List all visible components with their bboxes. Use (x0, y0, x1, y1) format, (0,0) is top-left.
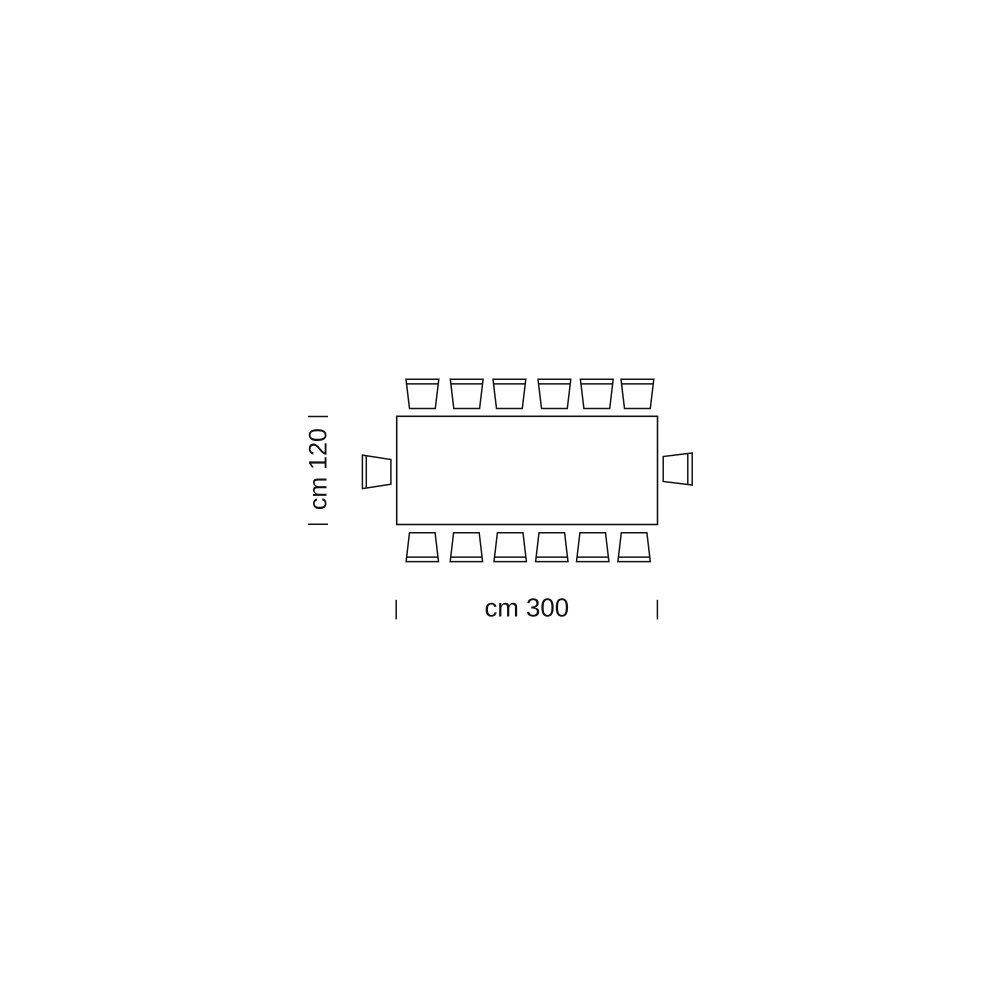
svg-text:cm 120: cm 120 (305, 428, 333, 510)
svg-text:cm 300: cm 300 (484, 595, 569, 623)
